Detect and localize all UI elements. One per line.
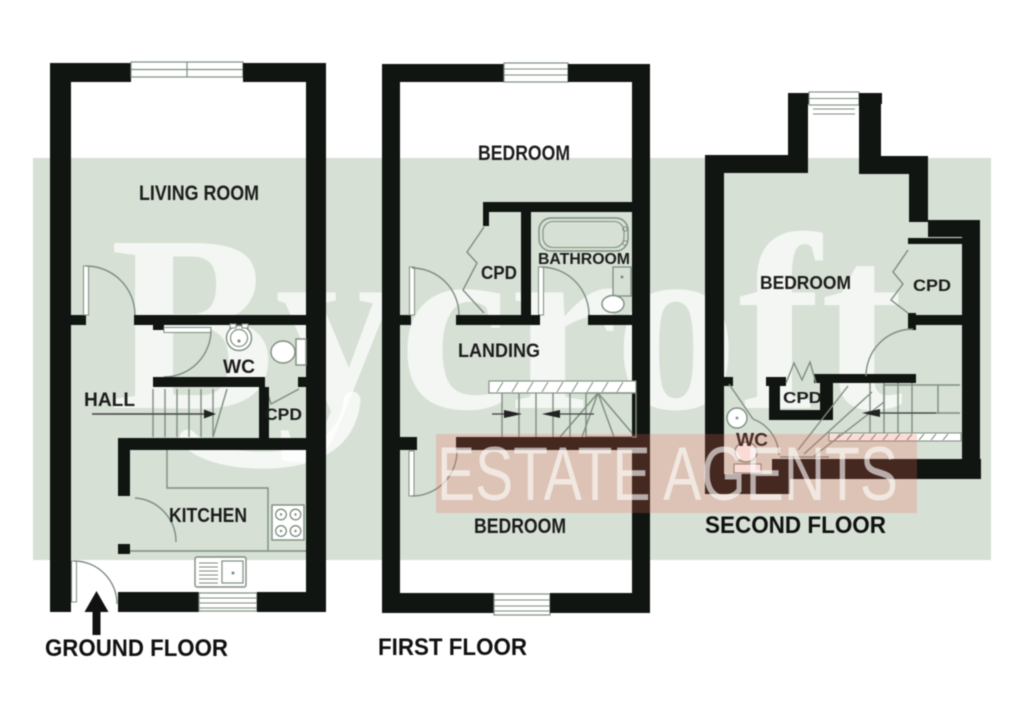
svg-text:BEDROOM: BEDROOM: [760, 273, 851, 293]
svg-text:CPD: CPD: [481, 263, 517, 283]
svg-text:WC: WC: [223, 357, 255, 378]
svg-text:KITCHEN: KITCHEN: [169, 505, 247, 527]
svg-text:ESTATE AGENTS: ESTATE AGENTS: [437, 432, 898, 517]
svg-text:BEDROOM: BEDROOM: [478, 142, 570, 165]
svg-text:BEDROOM: BEDROOM: [474, 515, 566, 538]
svg-text:CPD: CPD: [913, 276, 951, 295]
svg-text:HALL: HALL: [84, 390, 135, 411]
svg-text:CPD: CPD: [265, 405, 302, 424]
svg-text:BATHROOM: BATHROOM: [538, 251, 630, 268]
svg-text:LANDING: LANDING: [458, 341, 540, 362]
svg-text:GROUND FLOOR: GROUND FLOOR: [45, 635, 228, 662]
svg-text:CPD: CPD: [783, 390, 822, 407]
svg-text:FIRST FLOOR: FIRST FLOOR: [378, 634, 527, 661]
svg-text:LIVING ROOM: LIVING ROOM: [139, 182, 259, 205]
